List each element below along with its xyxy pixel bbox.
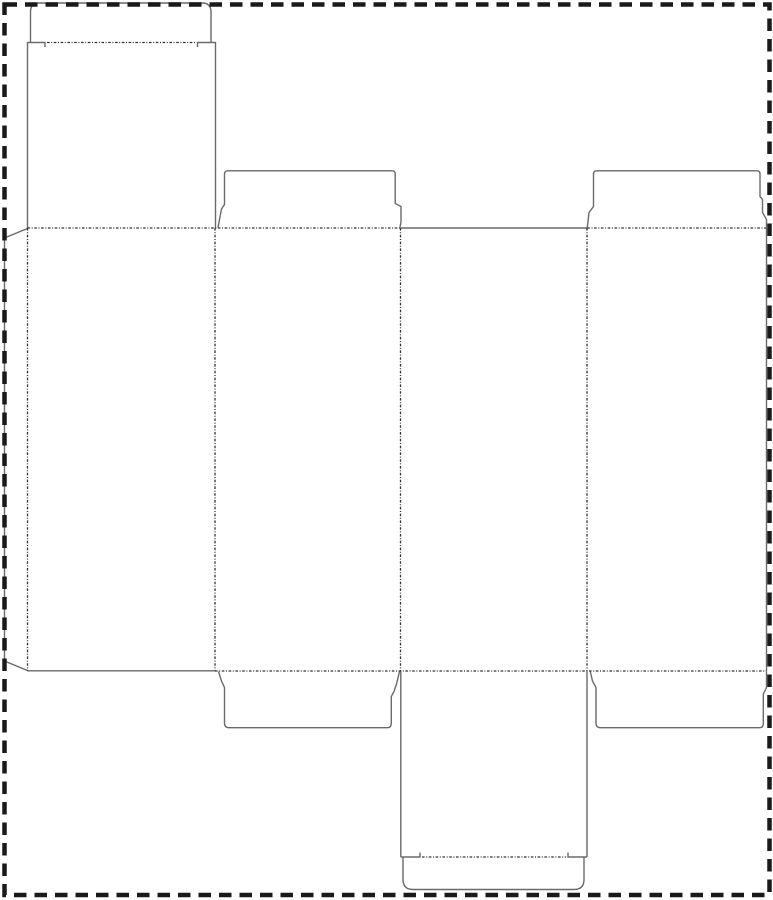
bottom-tuck-slit-right [568, 853, 587, 858]
dieline-page [0, 0, 773, 900]
page-border [5, 5, 770, 896]
cut-lines [5, 3, 767, 890]
top-dust-flap-panel4 [587, 171, 766, 228]
top-tuck-slit-right [198, 43, 216, 48]
top-tuck-flap-outline [31, 3, 212, 43]
bottom-tuck-flap-outline [403, 857, 584, 890]
top-dust-flap-panel2 [218, 171, 401, 228]
glue-flap-outline [5, 229, 28, 671]
dieline-drawing [0, 0, 773, 900]
bottom-tuck-slit-left [401, 853, 420, 858]
top-tuck-slit-left [28, 43, 46, 48]
bottom-dust-flap-panel2 [219, 672, 400, 728]
bottom-dust-flap-panel4 [590, 672, 766, 728]
fold-lines [28, 43, 767, 858]
page-border-group [5, 5, 770, 896]
